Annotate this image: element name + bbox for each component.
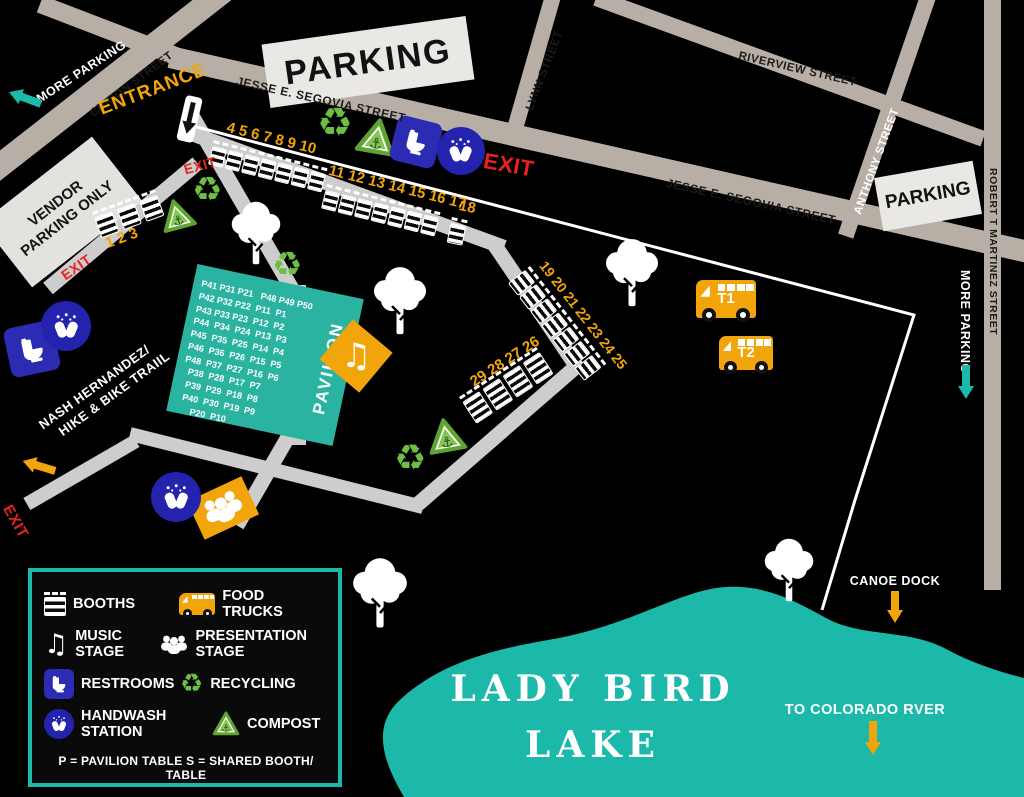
- legend-label: PRESENTATION STAGE: [196, 628, 329, 660]
- recycling-icon: ♻: [180, 671, 203, 697]
- to-colorado-river-label: TO COLORADO RVER: [780, 702, 950, 718]
- tree-icon: [761, 534, 817, 605]
- recycling-icon: ♻: [272, 248, 302, 282]
- handwash-icon: [41, 301, 91, 351]
- robert-t-martinez-street-label: ROBERT T MARTINEZ STREET: [987, 168, 999, 335]
- food-truck-icon: [179, 593, 215, 615]
- canoe-dock-arrow: [887, 591, 903, 625]
- handwash-icon: [151, 472, 201, 522]
- tree-icon: [349, 553, 411, 632]
- booth-numbers: 18: [457, 197, 477, 217]
- compost-icon: ⚓: [212, 710, 240, 738]
- food-truck-label: T1: [696, 280, 756, 317]
- legend-label: RECYCLING: [210, 676, 295, 692]
- food-truck-icon: [179, 593, 215, 615]
- lake-name-line1: LADY BIRD: [428, 668, 758, 710]
- compost-icon: ⚓: [423, 413, 469, 459]
- music-note-icon: ♫: [341, 336, 371, 376]
- food-truck-label: T2: [719, 336, 773, 369]
- legend: BOOTHS FOOD TRUCKS ♫ MUSIC STAGE PRESENT…: [28, 568, 342, 787]
- music-note-icon: ♫: [44, 631, 68, 658]
- food-truck-icon: T2: [719, 336, 773, 369]
- handwash-icon: [44, 709, 74, 739]
- lake-name-line2: LAKE: [428, 724, 758, 766]
- booth-icon: [44, 592, 66, 616]
- canoe-dock-label: CANOE DOCK: [845, 574, 945, 588]
- pavilion-table-numbers: P41 P31 P21 P48 P49 P50 P42 P32 P22 P11 …: [174, 277, 314, 438]
- svg-text:⚓: ⚓: [440, 434, 455, 452]
- more-parking-label-east: MORE PARKING: [958, 270, 972, 374]
- colorado-river-arrow: [865, 721, 881, 755]
- legend-label: RESTROOMS: [81, 676, 174, 692]
- more-parking-arrow-east: [958, 365, 974, 399]
- legend-label: HANDWASH STATION: [81, 708, 212, 740]
- tree-icon: [602, 234, 662, 310]
- legend-label: COMPOST: [247, 716, 320, 732]
- svg-text:⚓: ⚓: [222, 724, 231, 735]
- people-icon: [159, 634, 189, 655]
- recycling-icon: ♻: [192, 173, 222, 207]
- handwash-icon: [437, 127, 485, 175]
- legend-label: BOOTHS: [73, 596, 135, 612]
- food-truck-icon: T1: [696, 280, 756, 317]
- legend-label: FOOD TRUCKS: [222, 588, 328, 620]
- recycling-icon: ♻: [394, 441, 426, 477]
- tree-icon: [370, 262, 430, 338]
- event-map: VENDOR PARKING ONLY PARKING PARKING P41 …: [0, 0, 1024, 797]
- legend-label: MUSIC STAGE: [75, 628, 158, 660]
- legend-note: P = PAVILION TABLE S = SHARED BOOTH/ TAB…: [44, 754, 328, 782]
- restroom-icon: [44, 669, 74, 699]
